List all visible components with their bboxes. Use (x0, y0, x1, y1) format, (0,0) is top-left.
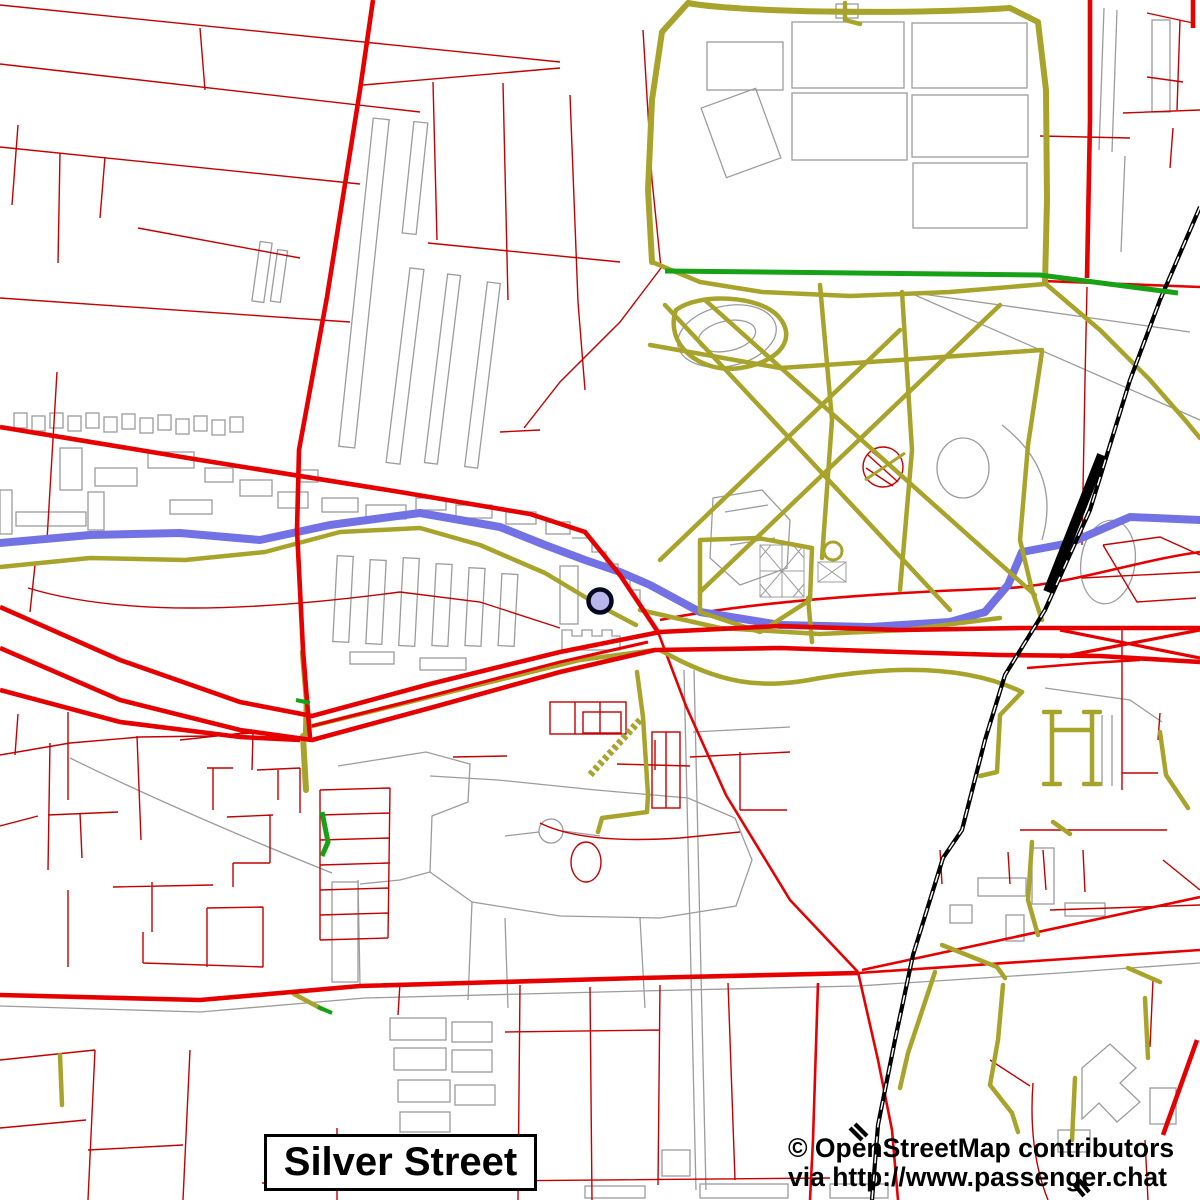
attribution-line1: © OpenStreetMap contributors (788, 1134, 1198, 1163)
location-marker[interactable] (589, 590, 612, 613)
map-canvas[interactable]: Silver Street © OpenStreetMap contributo… (0, 0, 1200, 1200)
paths-layer (0, 3, 1200, 1140)
attribution: © OpenStreetMap contributors via http://… (788, 1134, 1198, 1192)
formal-garden (760, 545, 846, 597)
attribution-line2: via http://www.passenger.chat (788, 1163, 1198, 1192)
place-name-label: Silver Street (264, 1134, 537, 1191)
map-graphics (0, 0, 1200, 1200)
place-name-text: Silver Street (284, 1140, 517, 1185)
